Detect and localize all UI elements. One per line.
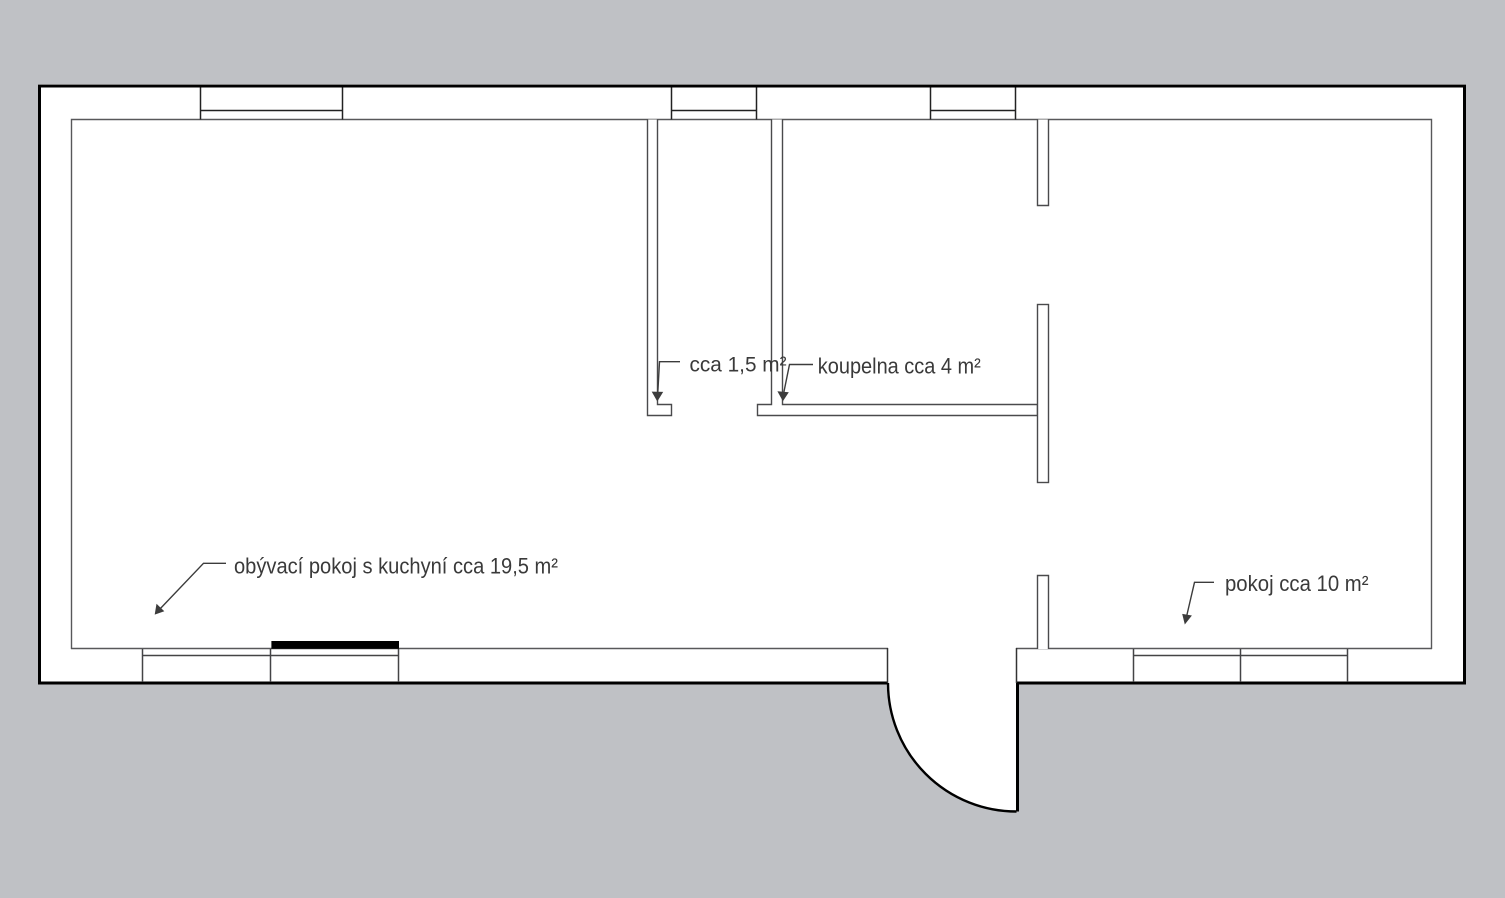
- svg-text:obývací pokoj s kuchyní cca 19: obývací pokoj s kuchyní cca 19,5 m²: [234, 553, 558, 578]
- svg-text:pokoj cca 10 m²: pokoj cca 10 m²: [1225, 571, 1369, 596]
- svg-text:cca 1,5 m²: cca 1,5 m²: [690, 353, 787, 376]
- svg-text:koupelna cca 4 m²: koupelna cca 4 m²: [818, 353, 981, 378]
